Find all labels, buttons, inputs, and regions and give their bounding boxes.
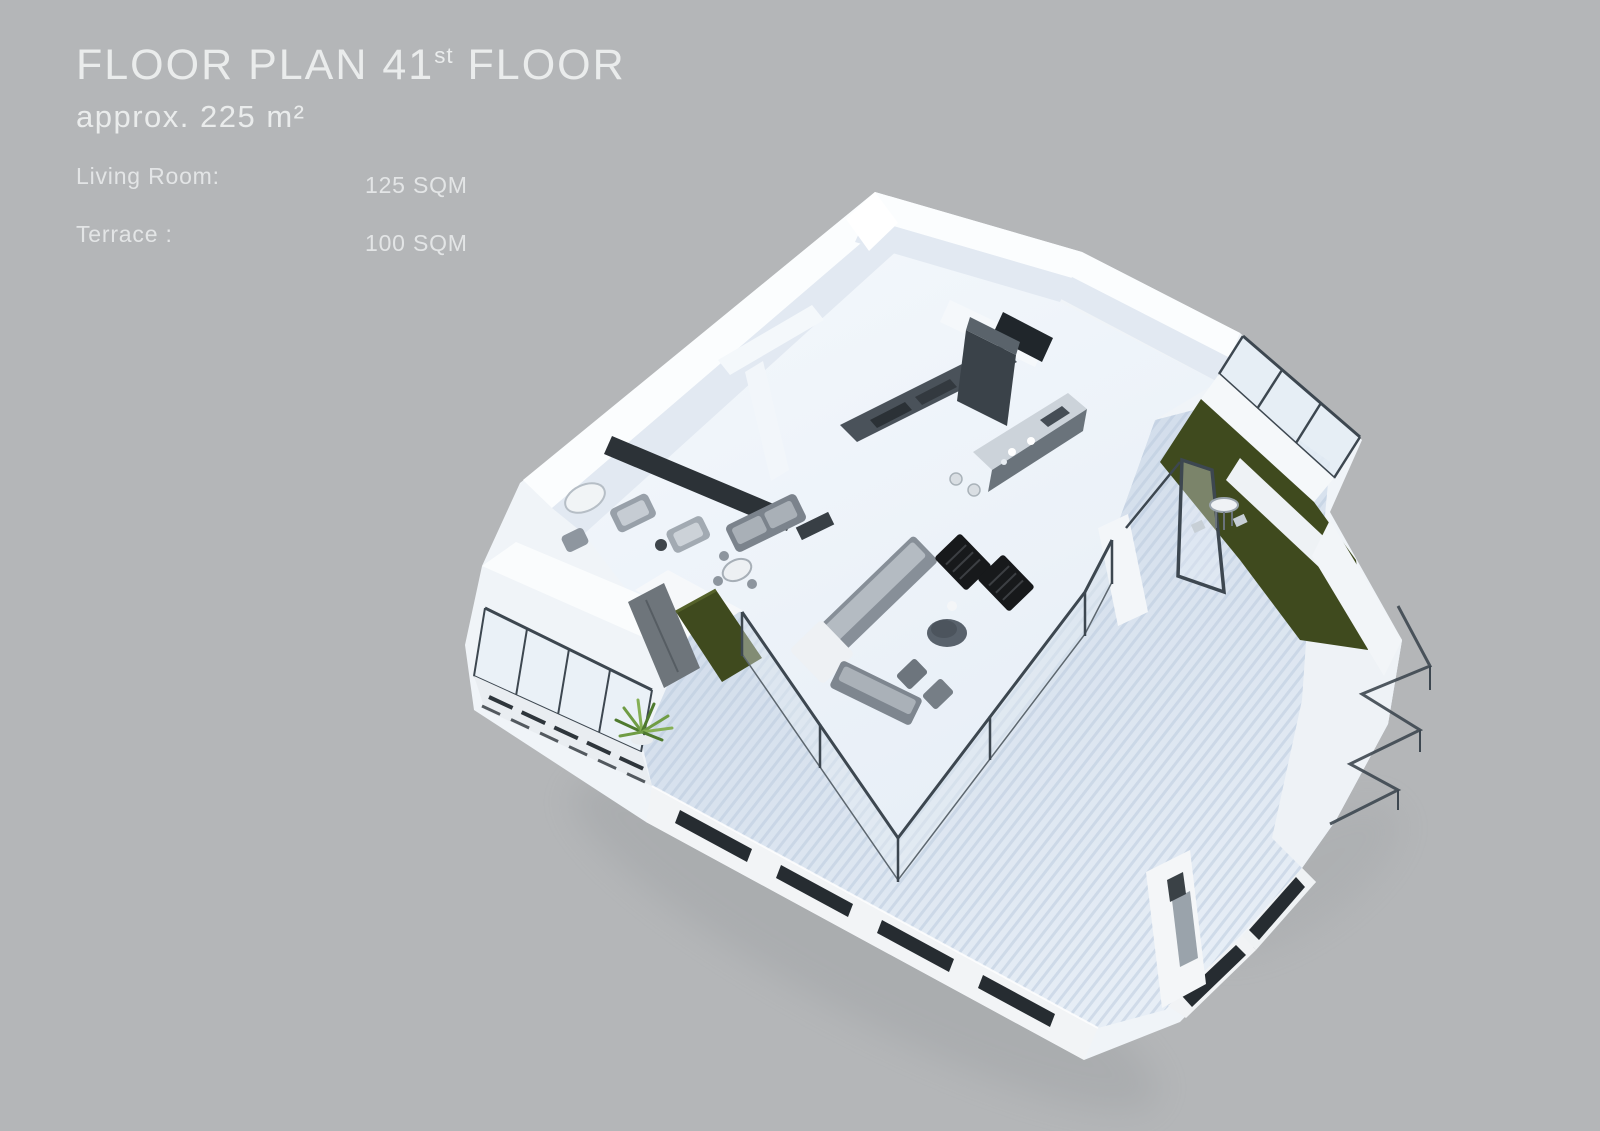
vase xyxy=(947,601,957,611)
spec-row-terrace: Terrace : 100 SQM xyxy=(76,221,626,257)
page: FLOOR PLAN 41st FLOOR approx. 225 m² Liv… xyxy=(0,0,1600,1131)
title-suffix: FLOOR xyxy=(454,41,626,89)
dining-chair xyxy=(719,551,729,561)
page-subtitle: approx. 225 m² xyxy=(76,99,626,135)
spec-label: Terrace : xyxy=(76,221,365,248)
spec-value: 100 SQM xyxy=(365,221,468,257)
area-specs: Living Room: 125 SQM Terrace : 100 SQM xyxy=(76,163,626,257)
page-title: FLOOR PLAN 41st FLOOR xyxy=(76,42,626,89)
side-table xyxy=(655,539,667,551)
title-superscript: st xyxy=(434,43,453,68)
sink-fixture xyxy=(1008,448,1016,456)
dining-chair xyxy=(713,576,723,586)
spec-label: Living Room: xyxy=(76,163,365,190)
spec-row-living-room: Living Room: 125 SQM xyxy=(76,163,626,199)
bistro-table xyxy=(1210,498,1238,512)
bar-stool xyxy=(950,473,962,485)
header: FLOOR PLAN 41st FLOOR approx. 225 m² Liv… xyxy=(76,42,626,279)
title-prefix: FLOOR PLAN 41 xyxy=(76,41,434,89)
dining-chair xyxy=(747,579,757,589)
bar-stool xyxy=(968,484,980,496)
spec-value: 125 SQM xyxy=(365,163,468,199)
